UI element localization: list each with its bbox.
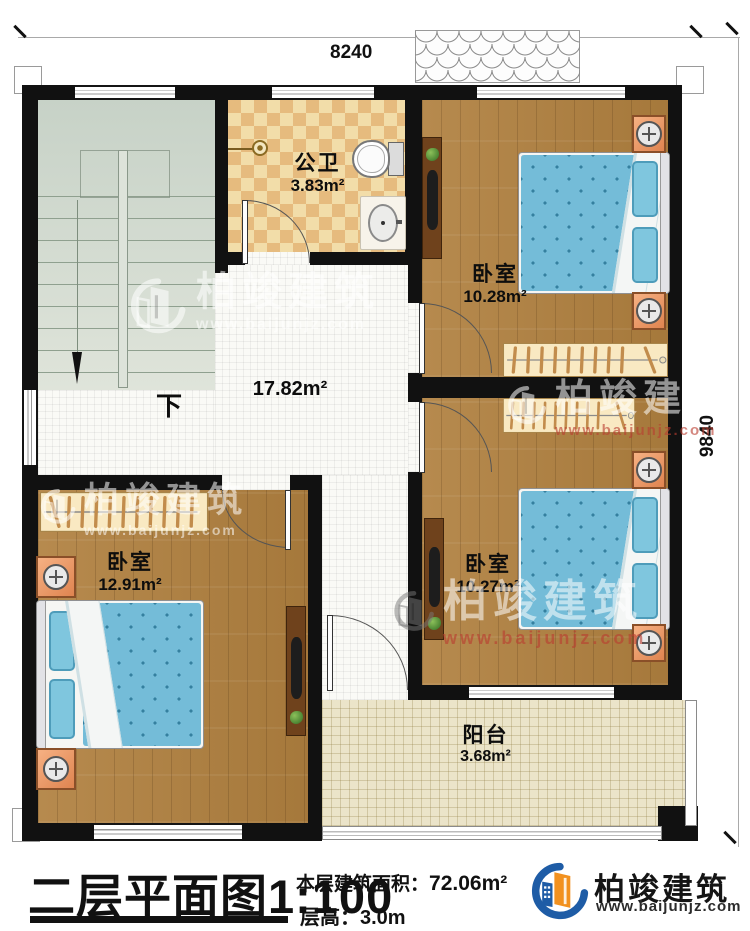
headboard: [660, 153, 669, 293]
wall: [668, 85, 682, 700]
floor-area-value: 72.06m²: [429, 872, 507, 895]
balcony-railing: [685, 700, 697, 826]
door-leaf: [419, 303, 425, 374]
wall: [22, 823, 94, 841]
nightstand: [632, 451, 666, 489]
door-leaf: [327, 615, 333, 691]
wall: [374, 85, 477, 100]
plant-icon: [290, 711, 303, 724]
pillow: [632, 227, 658, 283]
floor-area-text: 本层建筑面积：72.06m²: [296, 869, 507, 896]
title-underline: [30, 916, 288, 923]
room-area: 10.27m²: [443, 577, 533, 596]
room-name: 阳台: [438, 724, 533, 748]
wall: [614, 685, 682, 700]
stairs-down-label: 下: [150, 392, 190, 421]
nightstand: [36, 748, 76, 790]
sink-drain: [381, 221, 385, 225]
pillow: [632, 161, 658, 217]
wall: [242, 823, 322, 841]
brand-logo-icon: [530, 860, 590, 922]
wall: [408, 373, 422, 402]
room-area: 17.82m²: [235, 378, 345, 400]
pillow: [632, 563, 658, 619]
monitor-icon: [427, 170, 438, 230]
window: [272, 85, 374, 100]
nightstand: [632, 624, 666, 662]
room-label-hall-area: 17.82m²: [235, 378, 345, 400]
dimension-tick: [725, 22, 738, 35]
stair-walk-line: [77, 200, 78, 352]
roof-tiles: [415, 30, 580, 83]
room-label-balcony: 阳台 3.68m²: [438, 724, 533, 765]
plant-icon: [428, 617, 441, 630]
lamp-icon: [636, 630, 662, 656]
room-name: 公卫: [270, 152, 365, 176]
lamp-icon: [636, 121, 662, 147]
brand-website: www.baijunjz.com: [596, 898, 741, 915]
ceiling-light-icon: [252, 140, 268, 156]
window: [22, 390, 38, 465]
room-area: 10.28m²: [450, 287, 540, 306]
room-area: 3.68m²: [438, 748, 533, 766]
bed: [518, 488, 670, 630]
lamp-icon: [636, 457, 662, 483]
monitor-icon: [429, 547, 440, 607]
wall: [405, 100, 422, 265]
dimension-tick: [723, 831, 736, 844]
wall: [308, 475, 322, 841]
room-area: 12.91m²: [85, 575, 175, 594]
headboard: [37, 601, 46, 748]
wall: [175, 85, 272, 100]
room-label-bedroom-bottom-right: 卧室 10.27m²: [443, 553, 533, 596]
door-leaf: [285, 490, 291, 550]
door-threshold: [222, 475, 290, 490]
door-leaf: [242, 200, 248, 264]
wall: [38, 475, 222, 490]
floor-height-label: 层高：: [300, 907, 360, 929]
window: [477, 85, 625, 100]
floor-height-value: 3.0m: [360, 907, 406, 929]
wardrobe: [40, 492, 208, 532]
window: [75, 85, 175, 100]
floor-area-label: 本层建筑面积：: [296, 874, 429, 895]
wardrobe: [503, 398, 635, 433]
room-name: 卧室: [450, 263, 540, 287]
toilet-tank: [388, 142, 404, 176]
monitor-icon: [291, 637, 302, 699]
right-dimension-value: 9840: [697, 408, 719, 464]
wall: [215, 100, 228, 273]
room-label-bedroom-top-right: 卧室 10.28m²: [450, 263, 540, 306]
down-text: 下: [150, 392, 190, 421]
wall: [408, 685, 469, 700]
right-dimension-line: [738, 37, 739, 847]
floor-plan-page: { "dimensions": { "top": "8240", "right"…: [0, 0, 750, 931]
wall: [22, 85, 75, 100]
wardrobe: [503, 343, 668, 377]
balcony-railing: [322, 826, 662, 840]
wall: [408, 265, 422, 303]
nightstand: [632, 292, 666, 330]
lamp-icon: [43, 756, 69, 782]
top-dimension-line: [18, 37, 740, 38]
wall: [22, 100, 38, 390]
desk: [422, 137, 442, 259]
window: [94, 823, 242, 841]
plant-icon: [426, 148, 439, 161]
pillow: [49, 679, 75, 739]
bed: [518, 152, 670, 294]
nightstand: [36, 556, 76, 598]
top-dimension-value: 8240: [330, 42, 372, 64]
bed: [36, 600, 204, 749]
nightstand: [632, 115, 666, 153]
desk: [286, 606, 306, 736]
room-label-bathroom: 公卫 3.83m²: [270, 152, 365, 195]
lamp-icon: [636, 298, 662, 324]
wall: [422, 377, 668, 398]
room-name: 卧室: [85, 551, 175, 575]
stair-down-arrow-icon: [72, 352, 82, 384]
room-name: 卧室: [443, 553, 533, 577]
sink-tap: [396, 220, 402, 224]
headboard: [660, 489, 669, 629]
window: [469, 685, 614, 700]
floor-height-text: 层高：3.0m: [300, 901, 406, 930]
wall: [408, 472, 422, 700]
stair-divider: [118, 150, 128, 388]
room-label-bedroom-bottom-left: 卧室 12.91m²: [85, 551, 175, 594]
hall-floor: [215, 265, 408, 475]
door-leaf: [419, 402, 425, 473]
desk: [424, 518, 444, 640]
lamp-icon: [43, 564, 69, 590]
room-area: 3.83m²: [270, 176, 365, 195]
pillow: [632, 497, 658, 553]
wall: [310, 252, 422, 265]
